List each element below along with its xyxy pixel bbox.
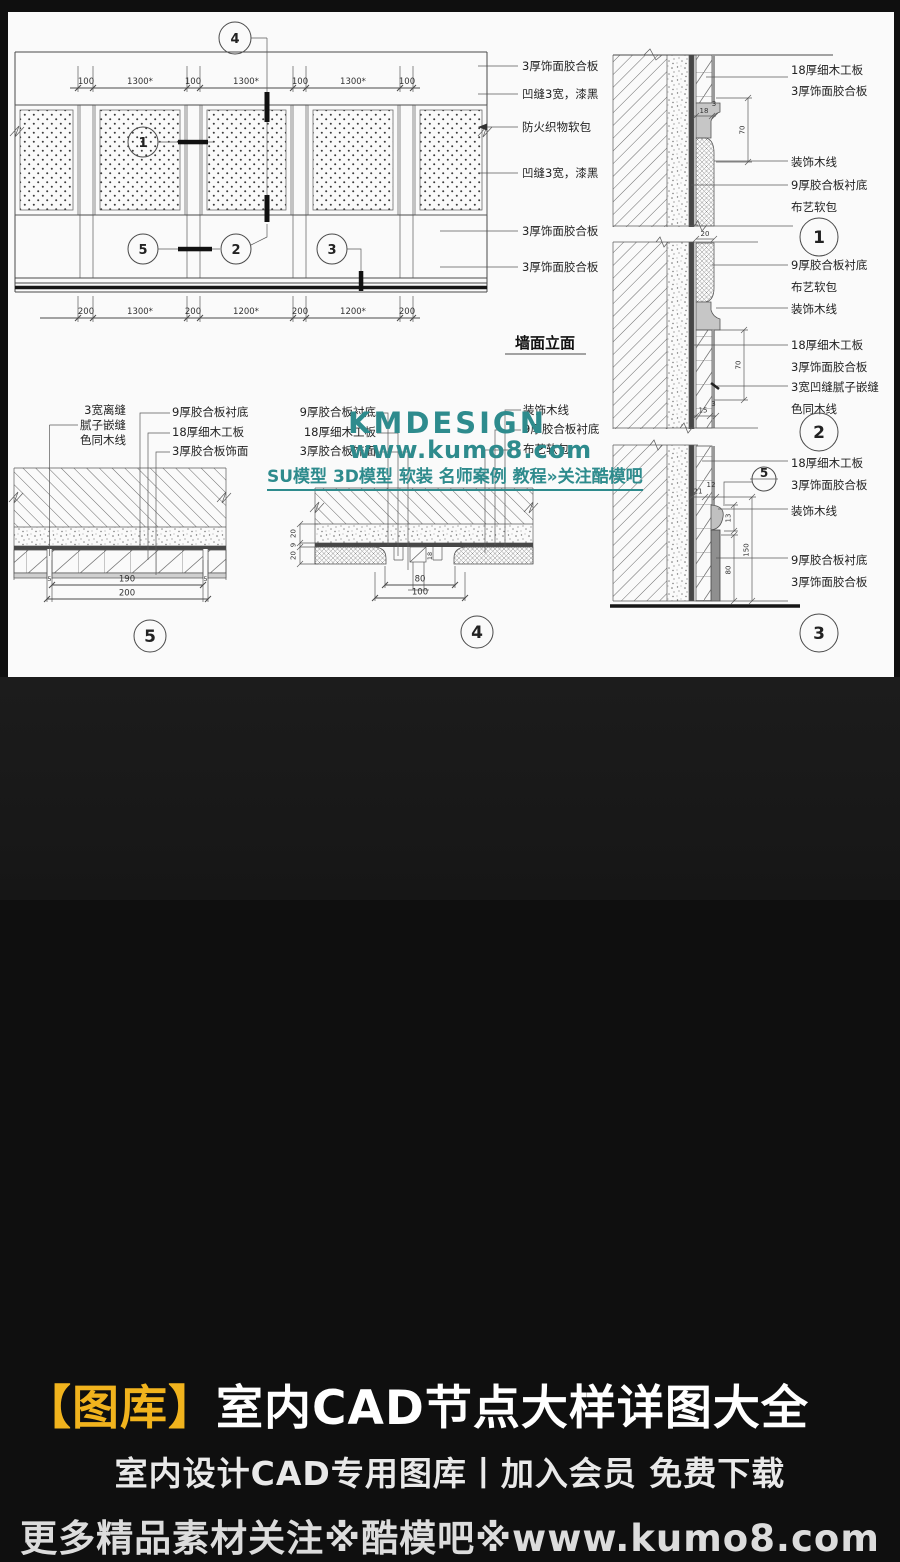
dim-label: 18: [700, 107, 709, 115]
note: 3厚胶合板饰面: [300, 444, 376, 458]
banner-subtitle: 室内设计CAD专用图库丨加入会员 免费下载: [0, 1447, 900, 1495]
dim-label: 20: [290, 551, 298, 560]
note: 3厚饰面胶合板: [791, 360, 868, 374]
dim-label: 200: [185, 307, 201, 317]
dim-label: 3: [712, 100, 716, 108]
detail4-bottom-dims: 80 100: [372, 566, 468, 601]
callout-number: 1: [138, 136, 147, 151]
dim-label: 100: [399, 77, 415, 87]
note: 装饰木线: [523, 403, 569, 417]
detail-ref-number: 2: [813, 423, 825, 443]
wall-hatch: [613, 55, 667, 601]
dim-label: 70: [739, 126, 747, 135]
note: 18厚细木工板: [791, 456, 864, 470]
dim-label: 12: [707, 481, 716, 489]
wall-hatch: [14, 468, 226, 527]
wall-hatch: [315, 488, 533, 524]
note: 9厚胶合板衬底: [523, 422, 600, 436]
banner-footer: 更多精品素材关注※酷模吧※www.kumo8.com: [0, 1508, 900, 1562]
softpack-right: [454, 547, 533, 564]
note: 凹缝3宽，漆黑: [522, 166, 598, 180]
dim-label: 1200*: [233, 307, 259, 317]
detail-ref-number: 5: [144, 627, 156, 647]
detail-4: 18 9厚胶合板衬底 18厚细木工板 3厚胶合板饰面 装饰木线 9厚胶合板衬底 …: [290, 403, 600, 648]
detail-ref-3: 3: [800, 614, 838, 652]
dim-label: 13: [725, 514, 733, 523]
callout-3: 3: [317, 234, 363, 291]
dim-label: 21: [694, 488, 703, 496]
detail-ref-2: 2: [800, 413, 838, 451]
dim-label: 80: [725, 566, 733, 575]
note: 3厚饰面胶合板: [522, 224, 599, 238]
dim-label: 200: [119, 589, 135, 599]
plywood-backing: [315, 543, 533, 547]
dim-label: 3: [711, 400, 715, 408]
note: 3厚胶合板饰面: [172, 444, 248, 458]
note: 装饰木线: [791, 504, 837, 518]
dim-label: 100: [78, 77, 94, 87]
molding-z2: [696, 302, 720, 330]
note: 9厚胶合板衬底: [791, 178, 868, 192]
detail5-ref-bubble: 5: [134, 620, 166, 652]
dim-label: 9: [290, 543, 298, 547]
dim-label: 150: [743, 543, 751, 556]
dim-label: 80: [415, 575, 426, 585]
callout-number: 3: [327, 243, 336, 258]
cad-drawing: 100 1300* 100 1300* 100 1300* 100 200 13…: [8, 12, 894, 677]
blockboard-band: [14, 550, 226, 573]
detail-ref-number: 3: [813, 624, 825, 644]
skirting-board: [711, 530, 720, 601]
note: 9厚胶合板衬底: [791, 258, 868, 272]
dim-label: 70: [735, 361, 743, 370]
detail-5: 3宽离缝 腻子嵌缝 色同木线 9厚胶合板衬底 18厚细木工板 3厚胶合板饰面 5…: [9, 403, 249, 652]
elevation-panels: [15, 105, 487, 215]
detail4-ref-bubble: 4: [461, 616, 493, 648]
softpack-z1: [696, 138, 714, 226]
note: 3宽离缝: [84, 403, 126, 417]
banner-title: 室内CAD节点大样详图大全: [216, 1381, 809, 1436]
note: 布艺软包: [791, 280, 837, 294]
elevation-top-dims: 100 1300* 100 1300* 100 1300* 100: [70, 66, 420, 92]
banner-headline: 【图库】室内CAD节点大样详图大全: [24, 1369, 809, 1438]
callout-number: 5: [138, 243, 147, 258]
break-band-1: [608, 227, 742, 242]
dim-label: 1300*: [127, 77, 153, 87]
dim-label: 100: [412, 588, 428, 598]
detail4-left-dims: 20 9 20: [290, 521, 319, 567]
dim-label: 5: [47, 575, 51, 583]
dim-label: 200: [292, 307, 308, 317]
dim-label: 1200*: [340, 307, 366, 317]
dim-label: 1300*: [127, 307, 153, 317]
dim-label: 20: [290, 529, 298, 538]
dim-label: 5: [203, 575, 207, 583]
drawing-sheet: 100 1300* 100 1300* 100 1300* 100 200 13…: [8, 12, 894, 677]
elevation-title: 墙面立面: [515, 334, 575, 352]
promo-banner: 【图库】室内CAD节点大样详图大全 室内设计CAD专用图库丨加入会员 免费下载 …: [0, 677, 900, 900]
plaster-stipple: [14, 527, 226, 546]
plywood-backing-strip: [689, 55, 694, 601]
note: 凹缝3宽，漆黑: [522, 87, 598, 101]
note: 布艺软包: [791, 200, 837, 214]
note: 3厚饰面胶合板: [791, 84, 868, 98]
callout-number: 2: [231, 243, 240, 258]
note: 18厚细木工板: [304, 425, 377, 439]
note: 18厚细木工板: [172, 425, 245, 439]
plaster-stipple: [315, 524, 533, 543]
callout-number: 4: [230, 32, 239, 47]
banner-tag: 【图库】: [24, 1381, 216, 1436]
cut-ref-number: 5: [760, 466, 768, 480]
note: 布艺软包: [523, 442, 569, 456]
face-ply-z3: [712, 446, 715, 505]
detail-ref-number: 1: [813, 228, 825, 248]
note: 3厚饰面胶合板: [522, 59, 599, 73]
dim-label: 20: [701, 230, 710, 238]
dim-label: 100: [292, 77, 308, 87]
note: 9厚胶合板衬底: [791, 553, 868, 567]
note: 3厚饰面胶合板: [791, 478, 868, 492]
detail-ref-1: 1: [800, 218, 838, 256]
note: 3宽凹缝腻子嵌缝: [791, 380, 879, 394]
note: 装饰木线: [791, 155, 837, 169]
plaster-stipple: [667, 55, 689, 601]
detail-ref-number: 4: [471, 623, 483, 643]
dim-label: 190: [119, 575, 135, 585]
note: 装饰木线: [791, 302, 837, 316]
dim-label: 200: [399, 307, 415, 317]
wall-elevation: 100 1300* 100 1300* 100 1300* 100 200 13…: [10, 22, 599, 354]
softpack-z2: [696, 243, 714, 302]
face-ply-z1: [712, 55, 715, 103]
dim-label: 15: [699, 407, 708, 415]
note: 防火织物软包: [522, 120, 591, 134]
note: 18厚细木工板: [791, 63, 864, 77]
dim-label: 100: [185, 77, 201, 87]
plywood-backing: [14, 546, 226, 550]
elevation-bottom-dims: 200 1300* 200 1200* 200 1200* 200: [40, 296, 420, 322]
blockboard-z1: [696, 55, 712, 103]
blockboard-z3: [696, 446, 712, 601]
note: 9厚胶合板衬底: [300, 405, 377, 419]
dim-label: 18: [426, 552, 434, 560]
softpack-left: [315, 547, 386, 564]
note: 3厚饰面胶合板: [522, 260, 599, 274]
callout-2: 2: [221, 224, 267, 264]
dim-label: 1300*: [340, 77, 366, 87]
note: 腻子嵌缝: [80, 418, 126, 432]
note: 色同木线: [80, 433, 126, 447]
note: 18厚细木工板: [791, 338, 864, 352]
note: 3厚饰面胶合板: [791, 575, 868, 589]
dim-label: 1300*: [233, 77, 259, 87]
dim-label: 200: [78, 307, 94, 317]
note: 9厚胶合板衬底: [172, 405, 249, 419]
break-band-2: [608, 429, 742, 445]
callout-5: 5: [128, 234, 220, 264]
wall-section: 18 3 70 20 15 3 70 21 12 13 80 150 5: [608, 49, 879, 652]
